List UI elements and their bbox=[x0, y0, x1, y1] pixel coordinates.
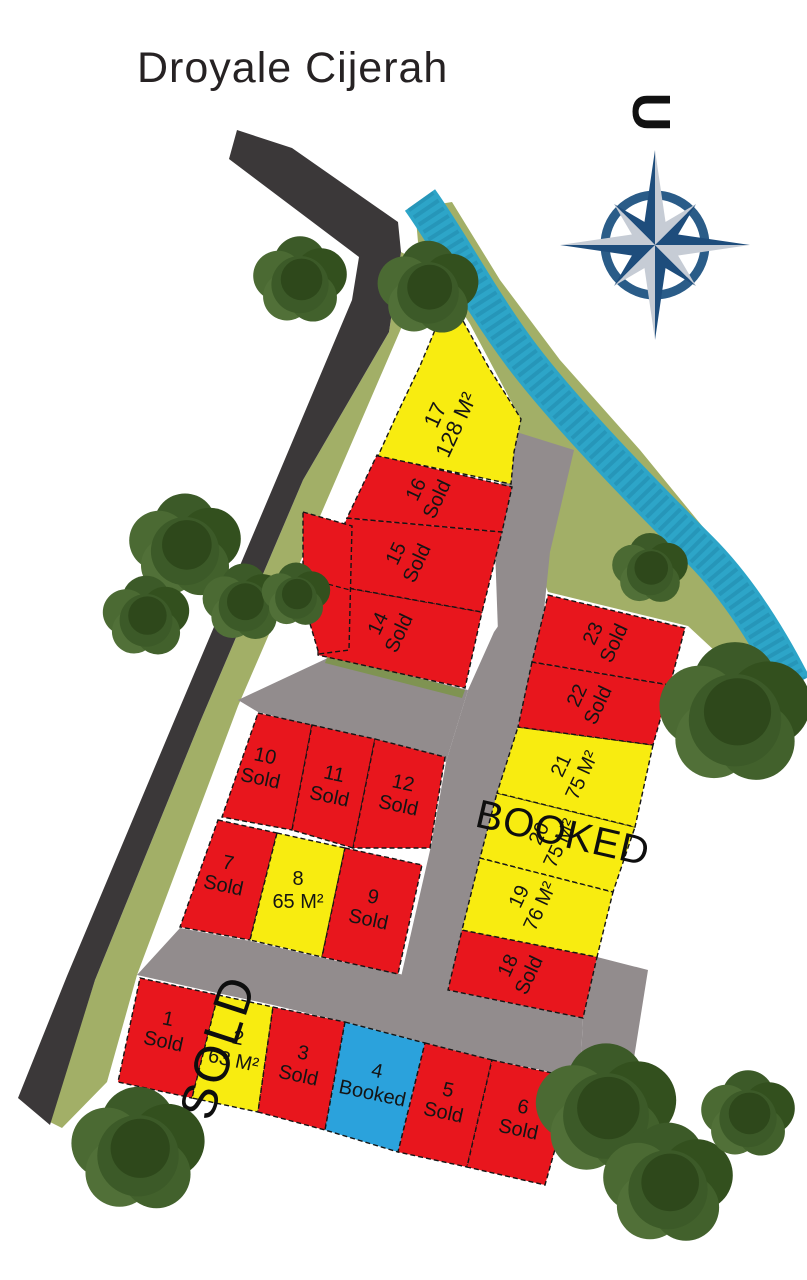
tree-foliage bbox=[282, 579, 312, 609]
tree-foliage bbox=[407, 265, 452, 310]
tree-foliage bbox=[162, 520, 212, 570]
lot-status: 65 M² bbox=[272, 891, 323, 913]
lot-number: 8 bbox=[292, 868, 303, 890]
tree-icon bbox=[701, 1070, 795, 1155]
lot-number: 12 bbox=[390, 770, 416, 796]
tree-foliage bbox=[227, 583, 264, 620]
tree-icon bbox=[253, 236, 347, 321]
tree-foliage bbox=[577, 1077, 639, 1139]
tree-foliage bbox=[111, 1119, 170, 1178]
tree-foliage bbox=[128, 596, 166, 634]
tree-foliage bbox=[634, 551, 668, 585]
tree-foliage bbox=[281, 259, 323, 301]
page-title: Droyale Cijerah bbox=[137, 44, 448, 92]
compass-north-label: U bbox=[621, 93, 681, 132]
tree-foliage bbox=[641, 1154, 699, 1212]
tree-foliage bbox=[704, 678, 771, 745]
lot-number: 10 bbox=[252, 743, 278, 769]
site-plan-page: 1Sold263 M²3Sold4Booked5Sold6Sold7Sold86… bbox=[0, 0, 807, 1280]
site-plan-drawing: 1Sold263 M²3Sold4Booked5Sold6Sold7Sold86… bbox=[0, 0, 807, 1280]
tree-foliage bbox=[729, 1093, 771, 1135]
compass: U bbox=[560, 93, 750, 341]
compass-star bbox=[560, 150, 750, 340]
